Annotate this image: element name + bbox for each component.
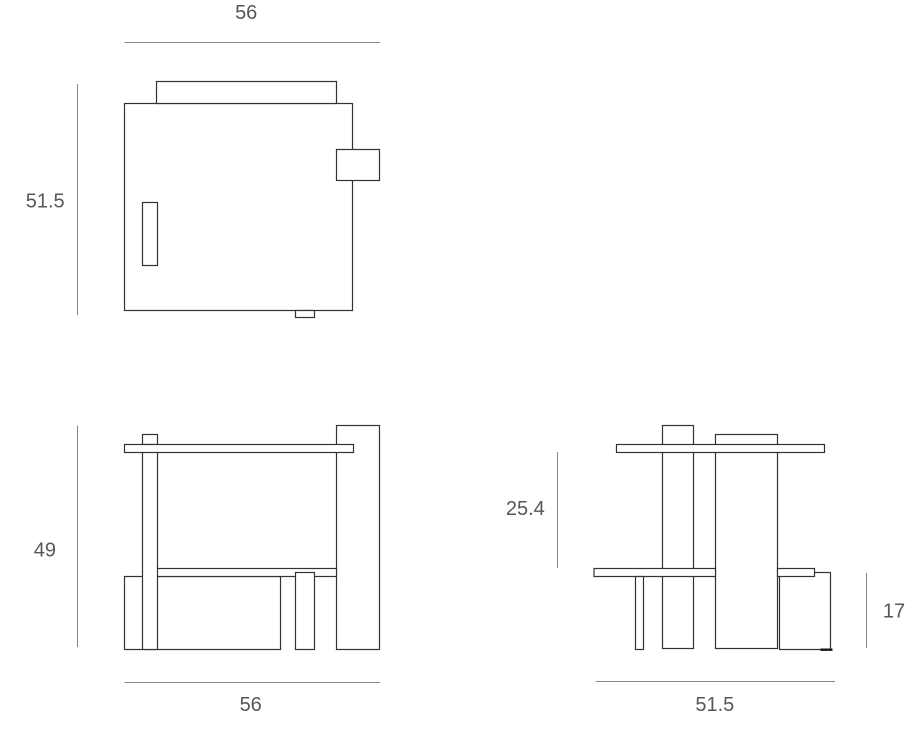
svg-text:51.5: 51.5: [26, 190, 65, 212]
svg-text:56: 56: [240, 694, 262, 716]
svg-text:56: 56: [235, 2, 257, 24]
svg-text:17: 17: [883, 600, 905, 622]
svg-text:49: 49: [34, 540, 56, 562]
svg-text:51.5: 51.5: [695, 694, 734, 716]
svg-text:25.4: 25.4: [506, 498, 545, 520]
